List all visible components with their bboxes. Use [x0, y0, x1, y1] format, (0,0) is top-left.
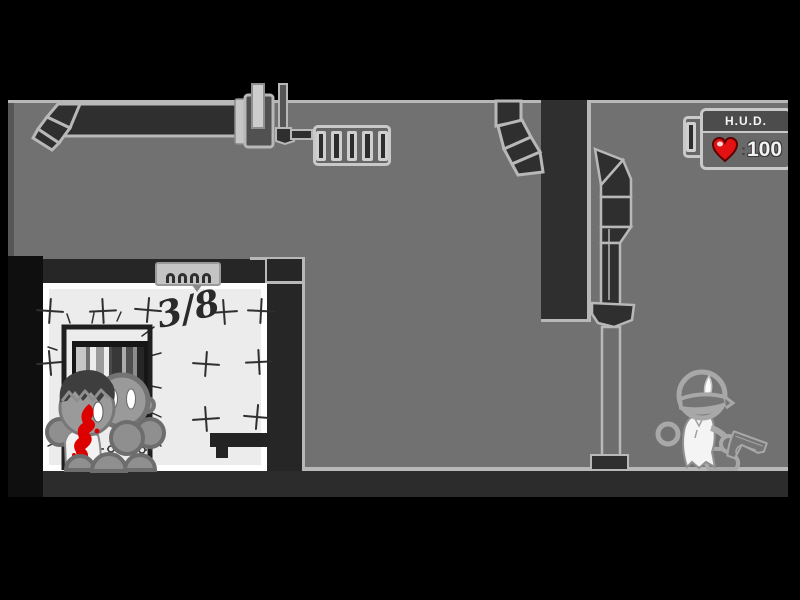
blood-drop [95, 429, 100, 434]
pipe-base-plate [591, 455, 628, 470]
wall-bench [210, 433, 270, 458]
tile-cross [36, 298, 64, 324]
pipe-foot [592, 303, 634, 327]
bench-top [210, 433, 270, 447]
pipe-taper [601, 227, 631, 243]
hud-title: H.U.D. [725, 114, 767, 128]
tile-cross [247, 298, 274, 323]
column-standpipe [591, 149, 634, 470]
counter-text: 3/8 [153, 282, 224, 337]
stage-border-right [788, 0, 800, 600]
light-riser-pipe [252, 84, 264, 128]
scratch [117, 312, 121, 321]
tile-cross [89, 298, 116, 323]
zombie-dome-head[interactable] [125, 455, 155, 470]
zombie-head-small[interactable] [111, 422, 143, 454]
blindfold-knot [725, 397, 733, 408]
tile-cross [192, 406, 220, 432]
scene-artwork: 3/8 [0, 0, 800, 600]
heart-icon [711, 137, 739, 163]
hud-separator: : [741, 142, 746, 159]
zombie-eye [127, 389, 136, 409]
heart-shape [713, 138, 737, 161]
pipe-wide [601, 197, 631, 227]
scratch [67, 314, 70, 323]
gray-standpipe [602, 327, 620, 456]
curved-duct-center [496, 101, 543, 175]
hud-body: : 100 [703, 133, 789, 167]
duct-pipe [58, 104, 237, 136]
tile-cross [192, 351, 220, 377]
zombie-dome-head[interactable] [66, 456, 94, 470]
scratch [92, 313, 94, 323]
hud-header: H.U.D. [703, 111, 789, 133]
tile-cross [36, 350, 64, 376]
bench-leg [216, 447, 228, 458]
white-coat [683, 412, 715, 468]
ceiling-duct-left [33, 84, 312, 150]
hud-panel: H.U.D. : 100 [700, 108, 792, 170]
tile-cross [245, 349, 272, 374]
heart-shine [717, 142, 723, 147]
rear-arm [658, 424, 678, 444]
pipe-narrow [601, 243, 620, 305]
zombie-eye [93, 402, 103, 422]
thin-horizontal-pipe [291, 130, 312, 139]
zombie-dome-head[interactable] [92, 454, 126, 471]
thin-riser-pipe [279, 84, 287, 130]
health-value: 100 [747, 138, 782, 162]
tile-cross [243, 404, 271, 430]
scratch [48, 347, 57, 350]
player-character[interactable] [658, 372, 767, 469]
game-stage: 3/8 [0, 0, 800, 600]
